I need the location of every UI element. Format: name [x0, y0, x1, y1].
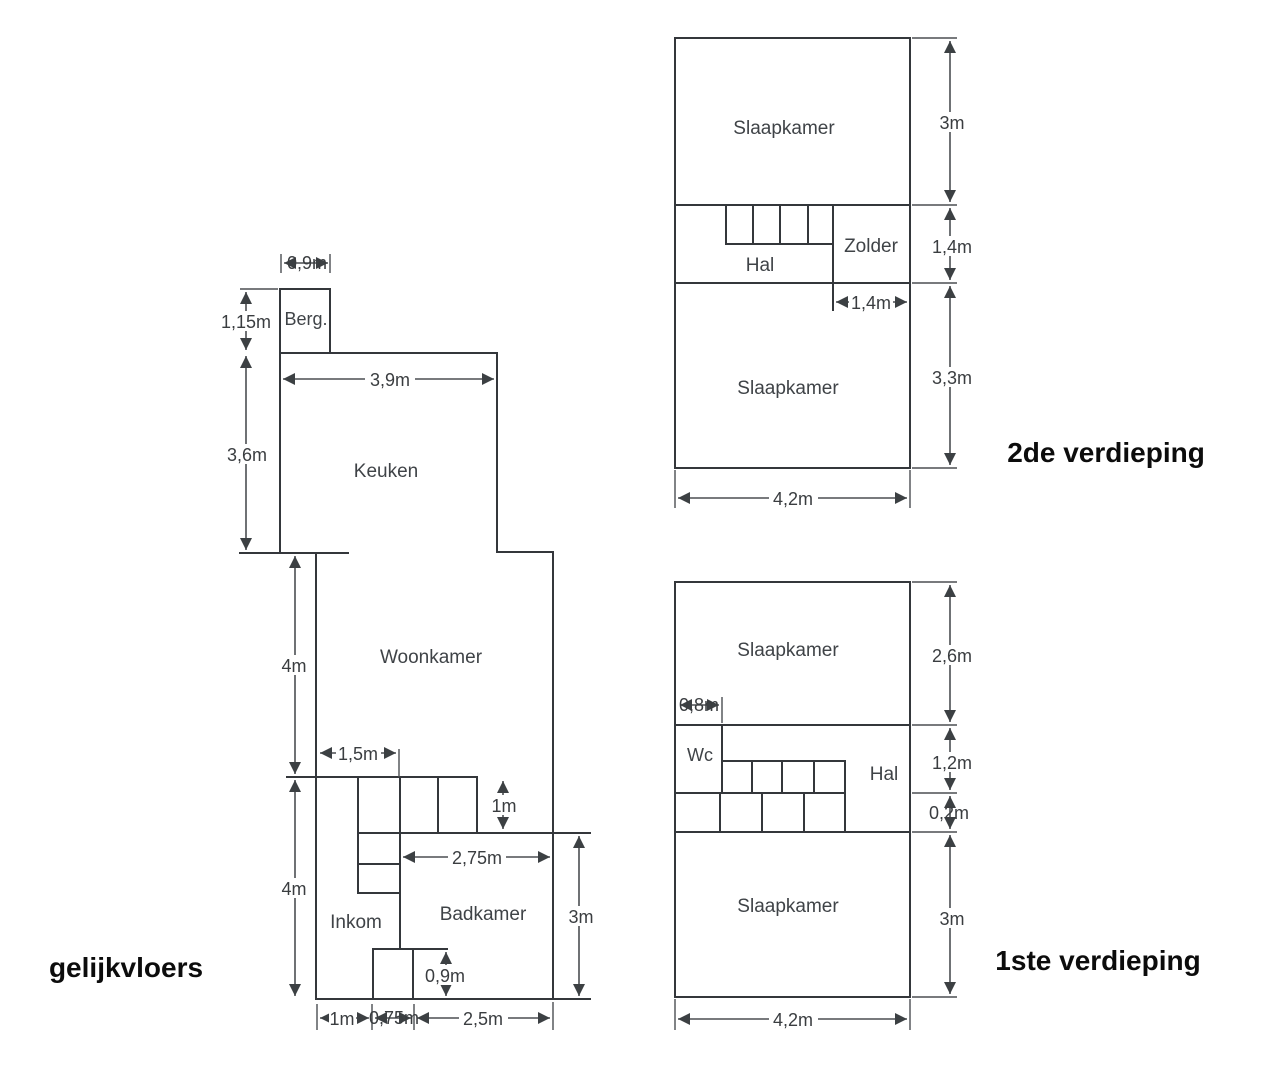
dim-bottom-left: 1m [329, 1009, 354, 1029]
room-berg: Berg. [284, 309, 327, 329]
second-floor-title: 2de verdieping [1007, 437, 1205, 468]
room-keuken: Keuken [354, 461, 418, 482]
dim-stair-width: 1,5m [338, 744, 378, 764]
room-zolder: Zolder [844, 236, 899, 257]
dim-2f-width: 4,2m [773, 489, 813, 509]
dim-inkom-height-group: 4m [278, 878, 311, 899]
dim-2f-top-height-group: 3m [936, 112, 969, 133]
first-floor-plan: 0,8m 2,6m 1,2m 0,2m 3m 4,2m Slaapkamer W… [675, 582, 1201, 1030]
dim-keuken-width: 3,9m [370, 370, 410, 390]
dim-zolder-width-group: 1,4m [849, 292, 893, 313]
dim-2f-bottom-height-group: 3,3m [929, 367, 975, 388]
dim-berg-height: 1,15m [221, 312, 271, 332]
dim-1f-bottom-height-group: 3m [936, 908, 969, 929]
dim-2f-hal-height-group: 1,4m [929, 236, 975, 257]
first-floor-title: 1ste verdieping [995, 945, 1200, 976]
dim-1f-top-height-group: 2,6m [929, 645, 975, 666]
dim-badkamer-width: 2,75m [452, 848, 502, 868]
dim-1f-bottom-height: 3m [939, 909, 964, 929]
dim-1f-landing-height: 0,2m [929, 803, 969, 823]
dim-berg-width: 0,9m [287, 253, 327, 273]
dim-2f-width-group: 4,2m [769, 488, 818, 509]
dim-1f-hal-height-group: 1,2m [929, 752, 975, 773]
dim-wc-width: 0,8m [679, 695, 719, 715]
dim-1f-hal-height: 1,2m [932, 753, 972, 773]
dim-badkamer-width-group: 2,75m [448, 847, 506, 868]
dim-stair-depth: 1m [491, 796, 516, 816]
dim-2f-bottom-height: 3,3m [932, 368, 972, 388]
dim-stair-width-group: 1,5m [336, 743, 381, 764]
room-badkamer: Badkamer [440, 904, 527, 925]
room-1f-slaapkamer-bottom: Slaapkamer [737, 896, 839, 917]
dim-badkamer-height-group: 3m [565, 906, 598, 927]
dim-bottom-left-group: 1m [329, 1008, 356, 1029]
room-1f-slaapkamer-top: Slaapkamer [737, 640, 839, 661]
room-2f-slaapkamer-top: Slaapkamer [733, 118, 835, 139]
floorplan-page: 0,9m 1,15m 3,9m 3,6m 4m 4m 1,5m 1m [0, 0, 1265, 1080]
dim-2f-top-height: 3m [939, 113, 964, 133]
ground-floor-plan: 0,9m 1,15m 3,9m 3,6m 4m 4m 1,5m 1m [49, 253, 598, 1030]
room-inkom: Inkom [330, 912, 382, 933]
dim-berg-height-group: 1,15m [218, 311, 274, 332]
dim-keuken-width-group: 3,9m [365, 369, 415, 390]
dim-bottom-middle: 0,75m [369, 1008, 419, 1028]
ground-floor-title: gelijkvloers [49, 952, 203, 983]
floorplan-diagram: 0,9m 1,15m 3,9m 3,6m 4m 4m 1,5m 1m [0, 0, 1265, 1080]
dim-stair-depth-group: 1m [489, 795, 519, 816]
dim-1f-width-group: 4,2m [769, 1009, 818, 1030]
dim-1f-top-height: 2,6m [932, 646, 972, 666]
room-2f-slaapkamer-bottom: Slaapkamer [737, 378, 839, 399]
room-2f-hal: Hal [746, 255, 775, 276]
dim-bottom-right-group: 2,5m [459, 1008, 508, 1029]
dim-woonkamer-height-group: 4m [278, 655, 311, 676]
room-woonkamer: Woonkamer [380, 647, 483, 668]
dim-keuken-height: 3,6m [227, 445, 267, 465]
dim-1f-width: 4,2m [773, 1010, 813, 1030]
dim-door-height: 0,9m [425, 966, 465, 986]
dim-2f-hal-height: 1,4m [932, 237, 972, 257]
dim-zolder-width: 1,4m [851, 293, 891, 313]
room-wc: Wc [687, 745, 713, 765]
dim-inkom-height: 4m [281, 879, 306, 899]
dim-keuken-height-group: 3,6m [222, 444, 272, 465]
dim-door-height-group: 0,9m [422, 965, 469, 986]
dim-woonkamer-height: 4m [281, 656, 306, 676]
second-floor-plan: 3m 1,4m 3,3m 1,4m 4,2m Slaapkamer Hal Zo… [675, 38, 1205, 509]
room-1f-hal: Hal [870, 764, 899, 785]
dim-badkamer-height: 3m [568, 907, 593, 927]
dim-bottom-right: 2,5m [463, 1009, 503, 1029]
